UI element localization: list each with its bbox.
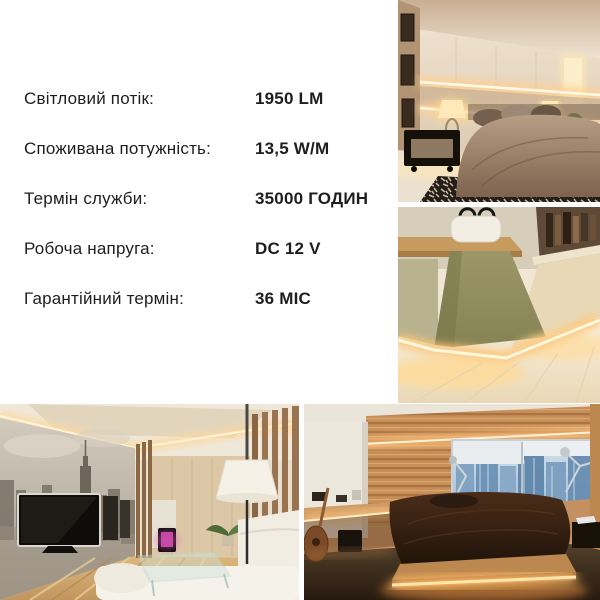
wood-slats	[136, 440, 152, 558]
tv	[18, 494, 100, 553]
spec-value: 13,5 W/M	[255, 138, 329, 160]
spec-row-luminous-flux: Світловий потік: 1950 LM	[24, 88, 394, 110]
photo-bedroom-backlit-wall-art	[398, 0, 600, 202]
spec-row-power: Споживана потужність: 13,5 W/M	[24, 138, 394, 160]
bed	[456, 104, 600, 197]
spec-label: Гарантійний термін:	[24, 288, 255, 310]
spec-value: DC 12 V	[255, 238, 321, 260]
spec-label: Світловий потік:	[24, 88, 255, 110]
spec-value: 1950 LM	[255, 88, 324, 110]
photo-living-room-cove-ceiling	[0, 404, 299, 600]
photo-living-room-cove-ceiling-art	[0, 404, 299, 600]
photo-baseboard-led-closet-art	[398, 207, 600, 403]
spec-value: 36 МІС	[255, 288, 311, 310]
spec-label: Споживана потужність:	[24, 138, 255, 160]
spec-row-lifetime: Термін служби: 35000 ГОДИН	[24, 188, 394, 210]
spec-value: 35000 ГОДИН	[255, 188, 368, 210]
photo-baseboard-led-closet	[398, 207, 600, 403]
photo-bedroom-backlit-wall	[398, 0, 600, 202]
photo-platform-bed-underglow	[304, 404, 600, 600]
spec-list: Світловий потік: 1950 LM Споживана потуж…	[24, 88, 394, 338]
product-infographic-canvas: Світловий потік: 1950 LM Споживана потуж…	[0, 0, 600, 600]
fireplace-glow	[156, 528, 178, 552]
photo-platform-bed-underglow-art	[304, 404, 600, 600]
spec-row-warranty: Гарантійний термін: 36 МІС	[24, 288, 394, 310]
spec-label: Термін служби:	[24, 188, 255, 210]
spec-label: Робоча напруга:	[24, 238, 255, 260]
spec-row-voltage: Робоча напруга: DC 12 V	[24, 238, 394, 260]
nightstand	[404, 130, 460, 172]
